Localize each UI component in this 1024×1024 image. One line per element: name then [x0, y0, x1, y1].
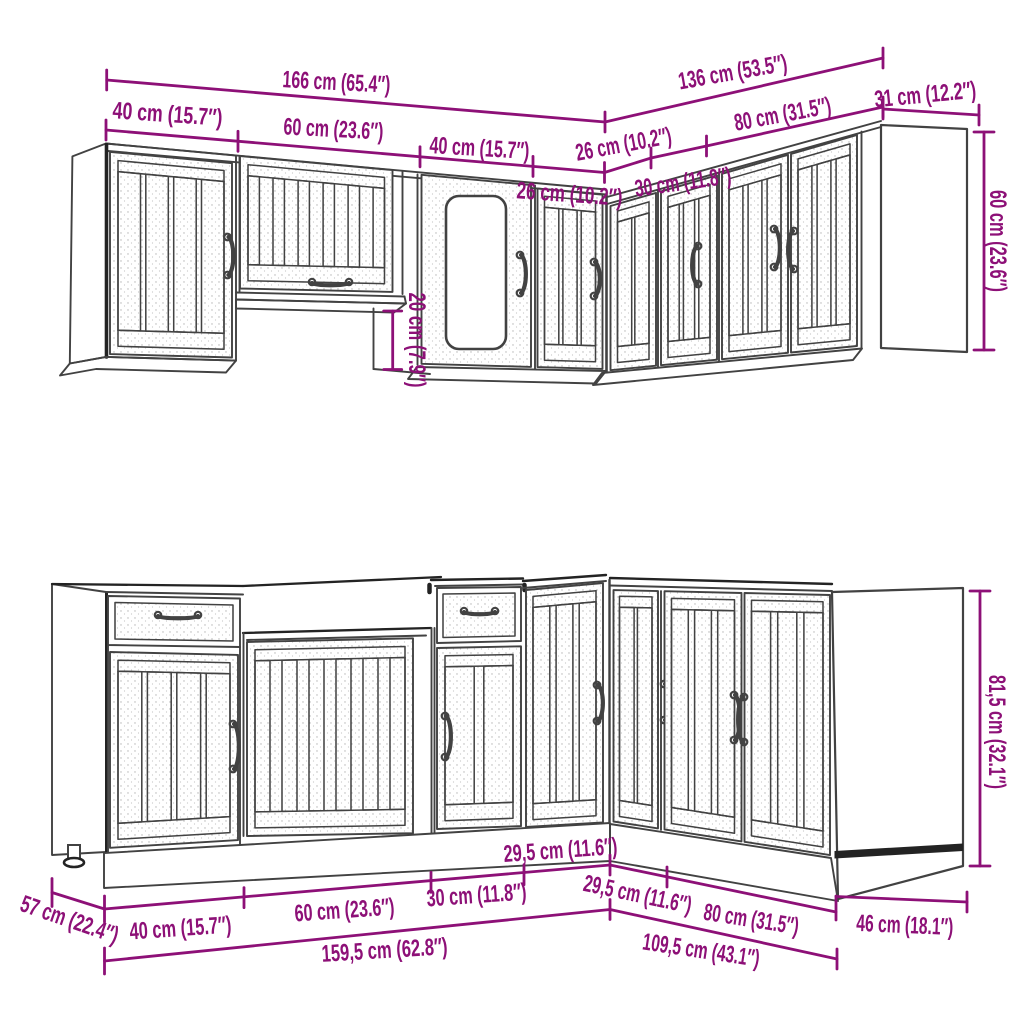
svg-text:136 cm (53.5″): 136 cm (53.5″): [676, 50, 789, 96]
svg-text:40 cm (15.7″): 40 cm (15.7″): [112, 97, 224, 132]
svg-text:30 cm (11.8″): 30 cm (11.8″): [426, 879, 528, 913]
svg-text:31 cm (12.2″): 31 cm (12.2″): [873, 77, 977, 114]
svg-text:109,5 cm (43.1″): 109,5 cm (43.1″): [641, 929, 762, 973]
svg-text:60 cm (23.6″): 60 cm (23.6″): [294, 894, 396, 928]
svg-text:20 cm (7.9″): 20 cm (7.9″): [403, 293, 430, 388]
svg-text:60 cm (23.6″): 60 cm (23.6″): [283, 113, 384, 145]
svg-text:29,5 cm (11.6″): 29,5 cm (11.6″): [503, 833, 619, 868]
svg-text:60 cm (23.6″): 60 cm (23.6″): [984, 190, 1011, 292]
svg-text:46 cm (18.1″): 46 cm (18.1″): [856, 910, 954, 941]
svg-text:26 cm (10.2″): 26 cm (10.2″): [573, 123, 673, 167]
svg-text:166 cm (65.4″): 166 cm (65.4″): [282, 66, 391, 99]
svg-text:80 cm (31.5″): 80 cm (31.5″): [702, 899, 801, 941]
svg-text:40 cm (15.7″): 40 cm (15.7″): [129, 911, 233, 945]
svg-text:81,5 cm (32.1″): 81,5 cm (32.1″): [983, 675, 1010, 789]
